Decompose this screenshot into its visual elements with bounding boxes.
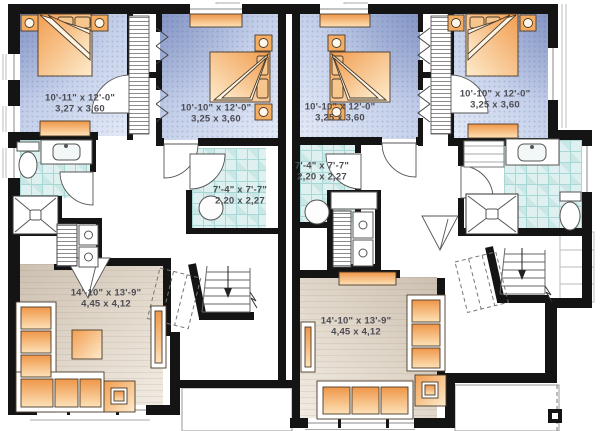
- closet-left-unit: [129, 16, 168, 134]
- dimension-imperial: 10'-10" x 12'-0": [305, 102, 376, 113]
- shower-icon: [13, 196, 58, 234]
- floor-plan: 10'-11" x 12'-0" 3,27 x 3,60 10'-10" x 1…: [0, 0, 600, 431]
- dimension-metric: 3,27 x 3,60: [45, 104, 115, 115]
- door-bathroom-main-right: [461, 166, 493, 198]
- dimension-metric: 3,25 x 3,60: [181, 114, 252, 125]
- dimension-imperial: 10'-10" x 12'-0": [181, 103, 252, 114]
- sink-vanity-icon: [41, 140, 92, 164]
- laundry-closet-right: [331, 192, 377, 267]
- windows-living-right: [308, 418, 414, 428]
- label-living-room-right: 14'-10" x 13'-9" 4,45 x 4,12: [321, 316, 392, 339]
- floor-plan-drawing: [0, 0, 600, 431]
- stair-break-line: [250, 292, 257, 308]
- entry-door-right: [422, 216, 458, 250]
- window-bedroom-4: [548, 48, 558, 100]
- laundry-closet-left: [57, 224, 98, 267]
- window-bathroom-right: [582, 146, 592, 192]
- stair-direction-arrow: [518, 248, 526, 280]
- dresser-bedroom-4: [468, 124, 518, 138]
- tv-right: [301, 322, 315, 372]
- chaise-right: [407, 295, 445, 371]
- dimension-imperial: 14'-10" x 13'-9": [71, 288, 142, 299]
- water-heater-right: [305, 200, 329, 224]
- dresser-bedroom-1: [40, 121, 90, 136]
- dimension-imperial: 10'-11" x 12'-0": [45, 93, 115, 104]
- sink-vanity-icon: [506, 139, 559, 165]
- dimension-metric: 2,20 x 2,27: [213, 196, 267, 207]
- patio-right: [455, 385, 562, 431]
- label-bathroom-right: 7'-4" x 7'-7" 2,20 x 2,27: [295, 161, 349, 184]
- side-table-right: [415, 375, 446, 406]
- party-wall: [278, 4, 286, 388]
- bed-3: [330, 52, 390, 102]
- label-bedroom-2-right: 10'-10" x 12'-0" 3,25 x 3,60: [460, 89, 531, 112]
- tv-left: [151, 306, 166, 368]
- patio-left: [180, 380, 292, 431]
- ottoman-left: [72, 330, 102, 359]
- shower-icon: [466, 194, 518, 234]
- dresser-bedroom-2: [190, 14, 242, 27]
- window-top-bedroom-3: [320, 4, 368, 14]
- dimension-imperial: 10'-10" x 12'-0": [460, 89, 531, 100]
- sofa-right: [317, 381, 413, 419]
- dimension-metric: 4,45 x 4,12: [321, 327, 392, 338]
- toilet-icon: [17, 142, 39, 178]
- label-bedroom-1-right: 10'-10" x 12'-0" 3,25 x 3,60: [305, 102, 376, 125]
- label-living-room-left: 14'-10" x 13'-9" 4,45 x 4,12: [71, 288, 142, 311]
- linen-shelves: [464, 141, 504, 167]
- dimension-metric: 2,20 x 2,27: [295, 172, 349, 183]
- stair-direction-arrow: [224, 266, 232, 298]
- dimension-metric: 3,25 x 3,60: [460, 100, 531, 111]
- dimension-metric: 3,25 x 3,60: [305, 113, 376, 124]
- dimension-imperial: 7'-4" x 7'-7": [295, 161, 349, 172]
- bed-4: [466, 14, 518, 76]
- windows-left-wall: [8, 54, 20, 178]
- side-table-left: [104, 381, 135, 412]
- console-right: [339, 272, 396, 285]
- bed-1: [38, 14, 92, 76]
- door-bathroom-main-left: [60, 172, 93, 205]
- door-bedroom-3: [382, 143, 416, 177]
- toilet-icon: [560, 192, 581, 230]
- dimension-imperial: 7'-4" x 7'-7": [213, 185, 267, 196]
- label-bathroom-left: 7'-4" x 7'-7" 2,20 x 2,27: [213, 185, 267, 208]
- window-top-bedroom-2: [190, 4, 242, 14]
- bed-2: [210, 52, 270, 102]
- dresser-bedroom-3: [320, 14, 370, 27]
- dimension-metric: 4,45 x 4,12: [71, 299, 142, 310]
- label-bedroom-1-left: 10'-11" x 12'-0" 3,27 x 3,60: [45, 93, 115, 116]
- label-bedroom-2-left: 10'-10" x 12'-0" 3,25 x 3,60: [181, 103, 252, 126]
- dimension-imperial: 14'-10" x 13'-9": [321, 316, 392, 327]
